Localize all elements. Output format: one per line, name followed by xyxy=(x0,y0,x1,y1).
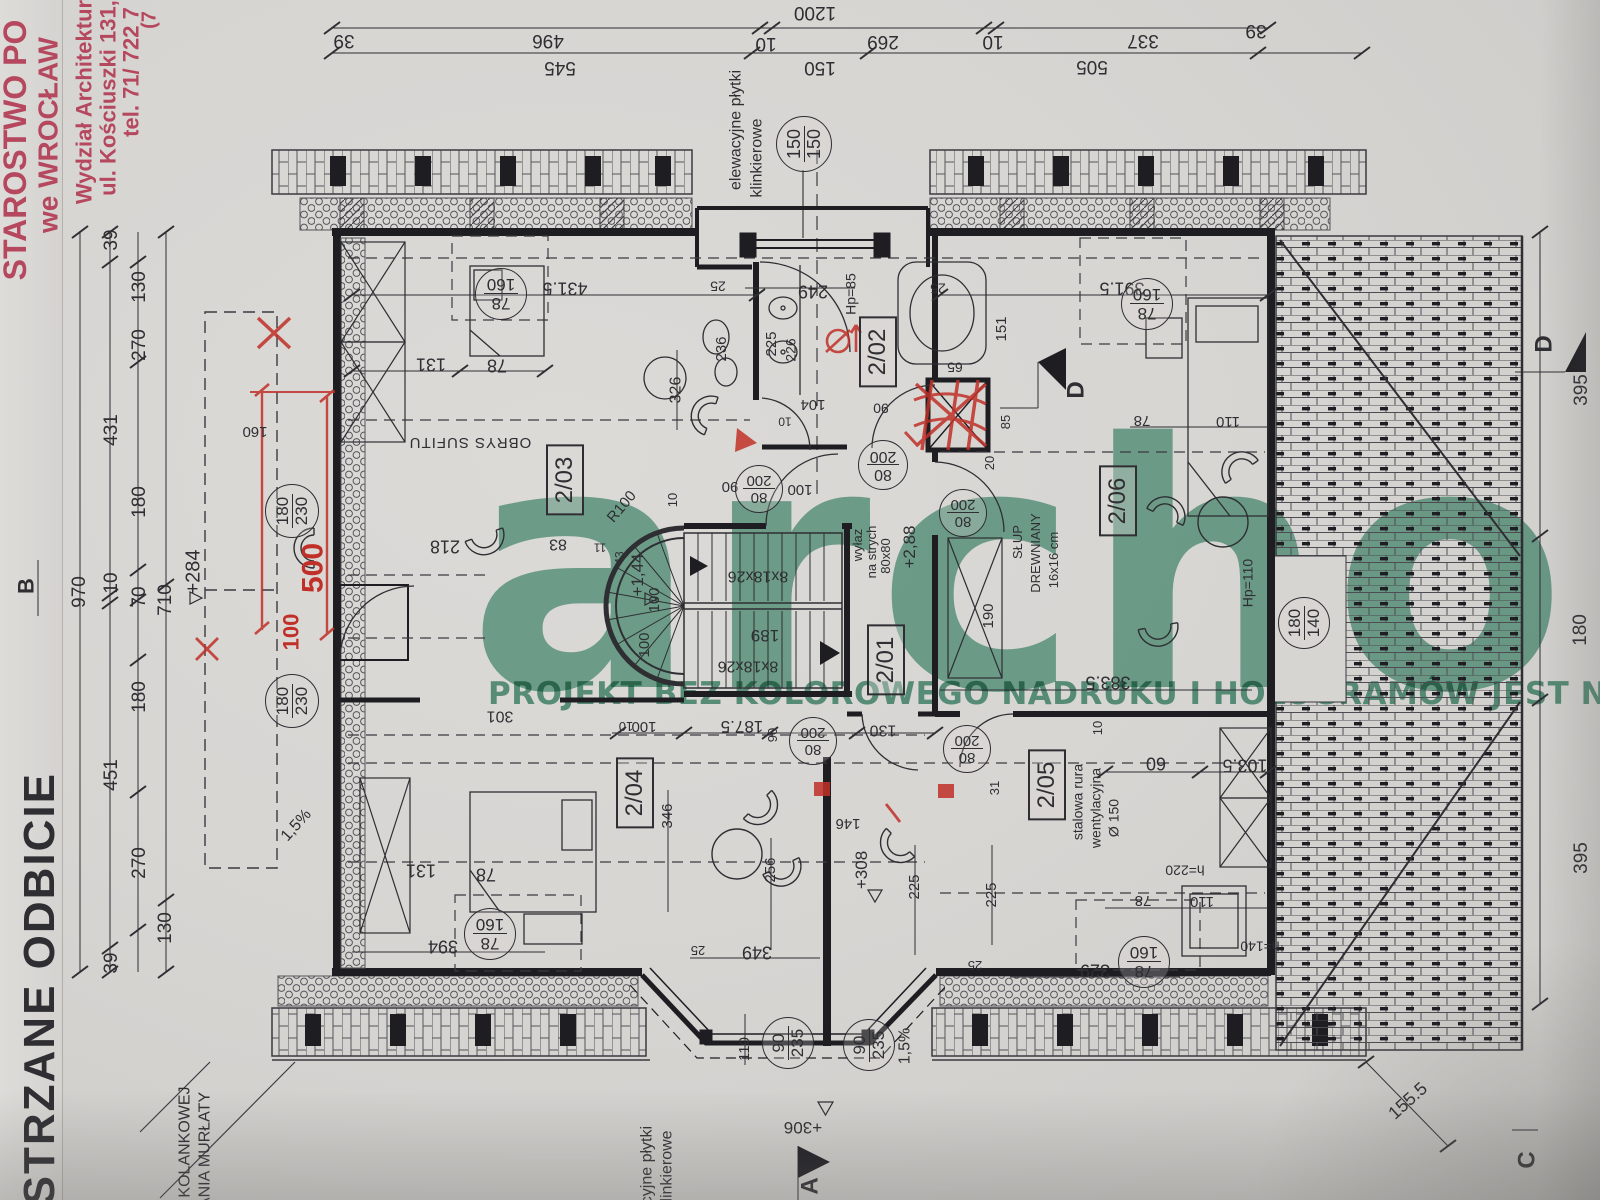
dimension-label: 31 xyxy=(988,781,1002,795)
photo-shadow xyxy=(1540,0,1600,1200)
dimension-label: 43 xyxy=(614,551,627,564)
annotation: 16x16 cm xyxy=(1047,532,1061,588)
dimension-label: 8x18x26 xyxy=(718,657,779,674)
dimension-label: 25 xyxy=(710,279,726,294)
window-door-marker: 180230 xyxy=(265,674,319,728)
dimension-label: 226 xyxy=(784,338,799,361)
scanned-floorplan-sheet: archon PROJEKT BEZ KOLOROWEGO NADRUKU I … xyxy=(0,0,1600,1200)
annotation: OBRYS SUFITU xyxy=(409,434,532,450)
dimension-label: 180 xyxy=(130,681,150,713)
window-door-marker: 90235 xyxy=(762,1017,814,1069)
window-door-marker: 150150 xyxy=(776,116,832,172)
dimension-label: 1,5% xyxy=(898,1028,915,1064)
dimension-label: 130 xyxy=(156,912,176,944)
dimension-label: 150 xyxy=(804,57,836,77)
dimension-label: 39 xyxy=(102,952,122,973)
dimension-label: 225 xyxy=(907,874,923,899)
dimension-label: 130 xyxy=(130,271,150,303)
dimension-label: 1200 xyxy=(794,2,836,22)
room-label: 2/03 xyxy=(546,445,584,516)
dimension-label: 83 xyxy=(549,535,567,552)
dimension-label: 225 xyxy=(984,882,1000,907)
dimension-label: Hp=85 xyxy=(844,273,859,315)
dimension-label: 337 xyxy=(1127,30,1159,50)
dimension-label: 225 xyxy=(764,331,780,356)
dimension-label: 11 xyxy=(594,541,606,554)
window-door-marker: 78160 xyxy=(464,908,516,960)
window-door-marker: 80200 xyxy=(943,725,991,773)
dimension-label: 710 xyxy=(156,584,176,616)
annotation: DREWNIANY xyxy=(1029,513,1043,592)
dimension-label: 301 xyxy=(487,707,514,724)
stamp-line: STAROSTWO PO xyxy=(0,20,33,281)
dimension-label: 130 xyxy=(870,721,897,738)
facade-note: klinkierowe xyxy=(750,118,767,197)
dimension-label: 346 xyxy=(660,803,676,828)
dimension-label: 90 xyxy=(873,401,889,416)
dimension-label: 218 xyxy=(430,537,460,556)
dimension-label: 39 xyxy=(333,30,354,50)
section-letter: D xyxy=(1063,381,1088,398)
room-label: 2/01 xyxy=(867,625,905,696)
room-label: 2/06 xyxy=(1099,466,1137,537)
dimension-label: 10 xyxy=(755,33,776,53)
dimension-label: 189 xyxy=(751,626,779,644)
dimension-label: 187.5 xyxy=(721,717,764,735)
dimension-label: 100 xyxy=(647,587,663,612)
dimension-label: 269 xyxy=(867,31,899,51)
dimension-label: 90 xyxy=(766,728,780,742)
dimension-label: 190 xyxy=(981,603,997,628)
dimension-label: 10 xyxy=(102,572,122,593)
window-door-marker: 80200 xyxy=(735,465,783,513)
dimension-label: 78 xyxy=(476,865,496,884)
dimension-label: +284 xyxy=(184,549,205,594)
dimension-label: 110 xyxy=(1216,413,1240,429)
dimension-label: 10 xyxy=(1091,721,1105,735)
dimension-label: 85 xyxy=(999,415,1013,429)
stamp-line: ul. Kościuszki 131, xyxy=(96,0,119,196)
dimension-label: 249 xyxy=(798,282,828,301)
stamp-line: Wydział Architektur xyxy=(72,0,95,204)
dimension-label: 270 xyxy=(130,329,150,361)
dimension-label: 20 xyxy=(983,456,997,470)
dimension-label: 270 xyxy=(130,847,150,879)
window-door-marker: 80200 xyxy=(789,717,837,765)
dimension-label: 70 xyxy=(130,586,150,607)
window-door-marker: 78160 xyxy=(475,268,527,320)
dimension-label: 8x18x26 xyxy=(728,567,789,584)
dimension-label: 10 xyxy=(666,493,680,507)
window-door-marker: 80200 xyxy=(858,440,908,490)
window-door-marker: 180140 xyxy=(1278,597,1330,649)
dimension-label: +308 xyxy=(853,851,871,889)
dimension-label: 25 xyxy=(968,958,982,972)
room-label: 2/04 xyxy=(616,758,654,829)
dimension-label: 100 xyxy=(787,481,812,497)
dimension-label: 383.5 xyxy=(1085,673,1130,692)
dimension-label: 39 xyxy=(1245,20,1266,40)
dimension-label: 131 xyxy=(406,861,436,880)
dimension-label: 505 xyxy=(1076,56,1108,76)
dimension-label: 110 xyxy=(737,1037,753,1061)
room-label: 2/02 xyxy=(859,317,897,388)
dimension-label: 151 xyxy=(994,316,1010,341)
dimension-label: Hp=110 xyxy=(1241,559,1256,607)
annotation: wyłaz xyxy=(851,529,865,562)
dimension-label: 970 xyxy=(70,576,90,608)
dimension-label: 256 xyxy=(763,857,779,882)
window-door-marker: 78160 xyxy=(1121,278,1173,330)
dimension-label: 545 xyxy=(544,57,576,77)
annotation: na strych xyxy=(865,526,879,579)
annotation: 80x80 xyxy=(879,538,893,573)
dimension-label: 131 xyxy=(416,355,446,374)
annotation: SŁUP xyxy=(1011,525,1025,559)
dimension-label: 394 xyxy=(428,937,458,956)
dimension-label: 65 xyxy=(947,360,963,375)
red-dim: 500 xyxy=(297,543,329,593)
dimension-label: 146 xyxy=(835,815,860,831)
red-dim: 100 xyxy=(279,614,302,651)
dimension-label: 39 xyxy=(102,229,122,250)
photo-shadow xyxy=(0,1090,1600,1200)
window-door-marker: 180230 xyxy=(265,484,319,538)
dimension-label: 160 xyxy=(242,423,267,439)
dimension-label: +2,88 xyxy=(901,525,919,568)
dimension-label: 180 xyxy=(130,486,150,518)
dimension-label: 326 xyxy=(669,377,686,404)
dimension-label: 104 xyxy=(800,396,825,412)
dimension-label: R100 xyxy=(604,488,639,526)
dimension-label: 451 xyxy=(102,759,122,791)
stamp-line: we WROCŁAW xyxy=(33,37,62,233)
dimension-label: 25 xyxy=(930,281,946,296)
dimension-label: 25 xyxy=(691,943,705,957)
dimension-label: 10 xyxy=(982,31,1003,51)
dimension-label: +1,44 xyxy=(629,553,647,596)
dimension-label: 100 xyxy=(631,718,656,734)
dimension-label: 78 xyxy=(487,356,507,375)
facade-note: elewacyjne płytki xyxy=(729,70,746,190)
window-door-marker: 90235 xyxy=(843,1019,895,1071)
dimension-label: 1,5% xyxy=(279,807,316,845)
dimension-label: 431.5 xyxy=(542,279,587,298)
dimension-label: 236 xyxy=(714,336,730,361)
dimension-label: 78 xyxy=(1134,412,1151,428)
dimension-label: 10 xyxy=(778,415,791,428)
window-door-marker: 80200 xyxy=(939,489,987,537)
dimension-label: 100 xyxy=(637,632,653,657)
dimension-label: 496 xyxy=(532,30,564,50)
dimension-label: 431 xyxy=(102,414,122,446)
section-letter: B xyxy=(14,578,37,594)
stamp-line: (7 xyxy=(140,11,161,29)
dimension-label: 349 xyxy=(742,943,772,962)
